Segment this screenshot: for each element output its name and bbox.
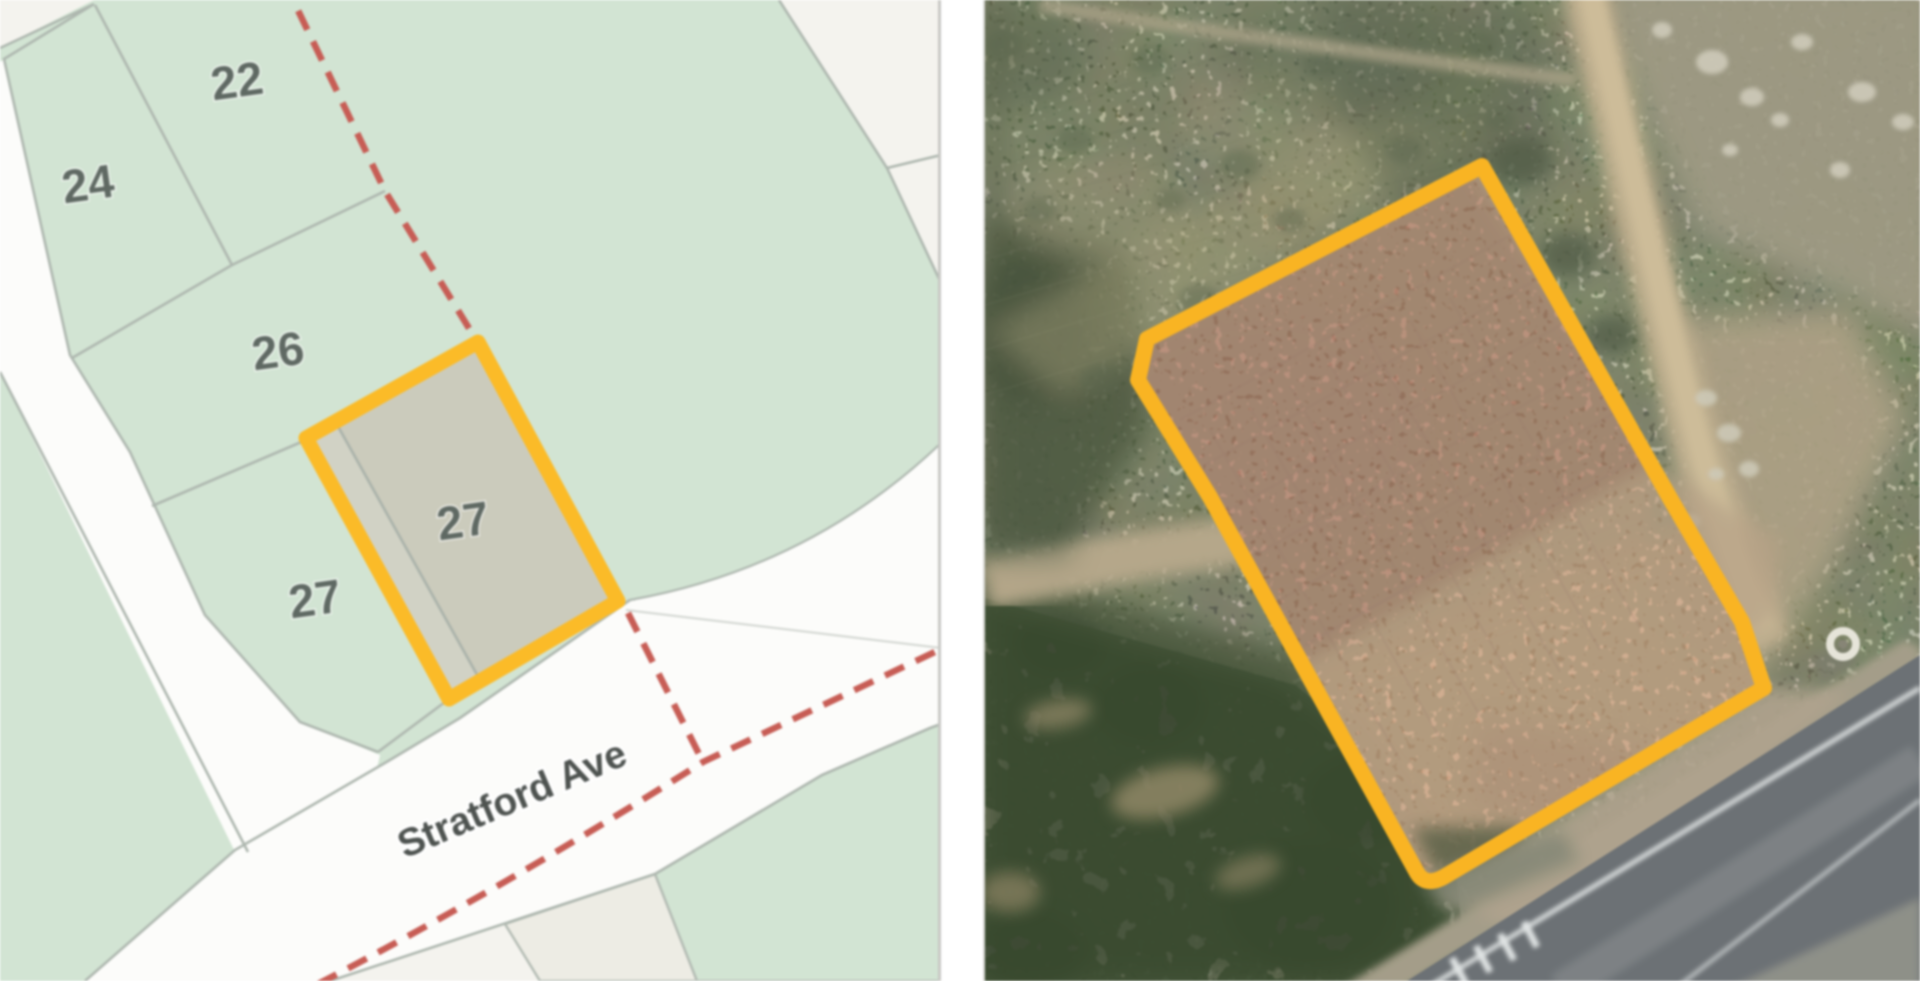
svg-text:22: 22 bbox=[207, 51, 266, 111]
svg-text:26: 26 bbox=[248, 321, 307, 381]
svg-text:27: 27 bbox=[285, 569, 344, 629]
svg-text:24: 24 bbox=[58, 154, 117, 214]
svg-text:27: 27 bbox=[433, 491, 492, 551]
